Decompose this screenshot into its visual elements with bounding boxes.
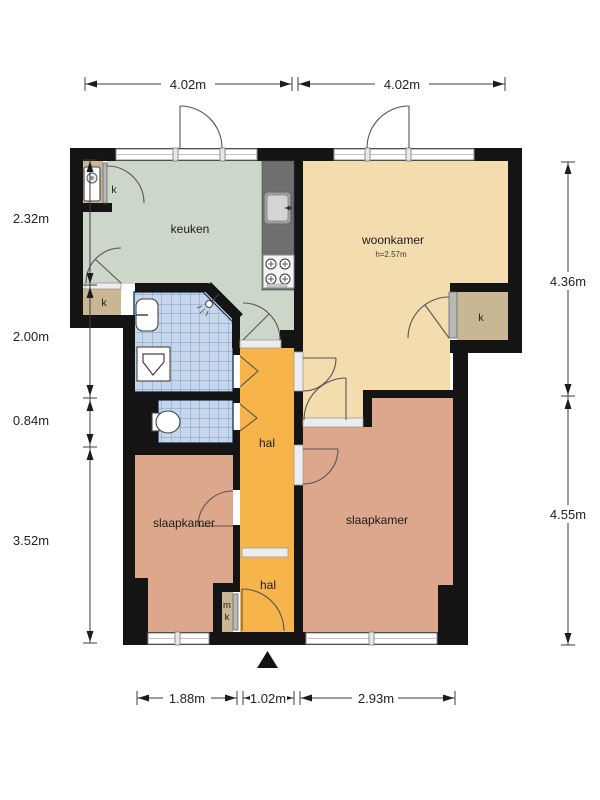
window-keuken (116, 148, 257, 161)
dim-left-2: 2.00m (13, 329, 49, 344)
meter-closet-label-m: m (223, 600, 231, 611)
woonkamer-ceiling-height: h=2.57m (375, 250, 407, 259)
washing-machine-icon (84, 167, 100, 201)
floor-plan-page: keuken woonkamer h=2.57m hal hal slaapka… (0, 0, 600, 800)
keuken-label: keuken (171, 222, 210, 236)
kitchen-counter (262, 161, 294, 290)
door-balcony-keuken (180, 106, 222, 148)
hal-top-label: hal (259, 436, 275, 450)
dim-bottom-3: 2.93m (358, 691, 394, 706)
kitchen-sink-icon (264, 192, 292, 224)
dim-left-4: 3.52m (13, 533, 49, 548)
dim-bottom-2: 1.02m (250, 691, 286, 706)
closet-top-left-label: k (111, 184, 117, 196)
stove-icon (263, 255, 294, 288)
dimension-top: 4.02m 4.02m (85, 76, 505, 92)
door-meter-closet (233, 594, 238, 630)
dim-right-2: 4.55m (550, 507, 586, 522)
slaapkamer-right-label: slaapkamer (346, 513, 408, 527)
entrance-arrow-icon (257, 651, 278, 668)
floor-plan-canvas: keuken woonkamer h=2.57m hal hal slaapka… (0, 0, 600, 800)
dim-left-3: 0.84m (13, 413, 49, 428)
shower-tray-icon (137, 347, 170, 381)
dim-top-right: 4.02m (384, 77, 420, 92)
dim-left-1: 2.32m (13, 211, 49, 226)
window-slaapkamer-right (306, 632, 437, 645)
washbasin-icon (136, 299, 158, 331)
dim-bottom-1: 1.88m (169, 691, 205, 706)
toilet-icon (152, 411, 180, 433)
dim-right-1: 4.36m (550, 274, 586, 289)
meter-closet-label-k: k (225, 612, 230, 623)
woonkamer-label: woonkamer (361, 233, 424, 247)
dimension-right: 4.36m 4.55m (544, 162, 592, 645)
window-woonkamer (334, 148, 474, 161)
closet-mid-left-label: k (101, 297, 107, 309)
dimension-bottom: 1.88m 1.02m 2.93m (137, 690, 455, 706)
door-balcony-woonkamer (367, 106, 409, 148)
closet-right-label: k (478, 312, 484, 324)
hal-bottom-label: hal (260, 578, 276, 592)
dim-top-left: 4.02m (170, 77, 206, 92)
slaapkamer-left-label: slaapkamer (153, 516, 215, 530)
window-slaapkamer-left (148, 632, 209, 645)
